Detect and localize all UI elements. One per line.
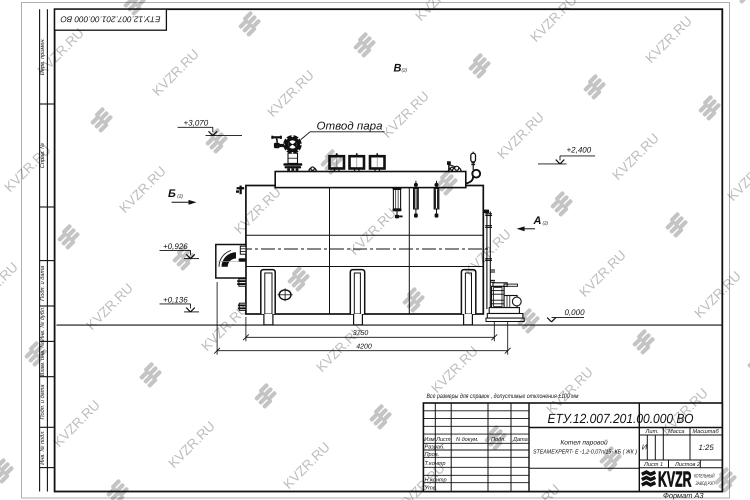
svg-text:KVZR: KVZR bbox=[658, 468, 692, 492]
svg-text:Дата: Дата bbox=[512, 437, 528, 443]
svg-text:В: В bbox=[394, 63, 402, 75]
svg-text:Лит.: Лит. bbox=[645, 429, 659, 435]
svg-text:+3,070: +3,070 bbox=[184, 119, 209, 128]
svg-text:N докум.: N докум. bbox=[456, 436, 479, 443]
svg-text:Подп. и дата: Подп. и дата bbox=[39, 384, 46, 419]
svg-text:ЕТУ.12.007.201.00.000 ВО: ЕТУ.12.007.201.00.000 ВО bbox=[60, 14, 161, 23]
svg-text:Подп. и дата: Подп. и дата bbox=[39, 266, 46, 301]
svg-text:Изм.Лист: Изм.Лист bbox=[424, 437, 451, 443]
svg-text:Б: Б bbox=[168, 188, 176, 200]
svg-text:И: И bbox=[642, 443, 648, 452]
svg-text:+2,400: +2,400 bbox=[567, 145, 592, 154]
svg-text:0,000: 0,000 bbox=[565, 308, 586, 317]
svg-text:Отвод пара: Отвод пара bbox=[317, 121, 383, 133]
svg-text:(2): (2) bbox=[402, 68, 408, 73]
svg-text:1:25: 1:25 bbox=[699, 443, 715, 452]
svg-text:(2): (2) bbox=[543, 220, 549, 225]
svg-text:Инв. № дубл.: Инв. № дубл. bbox=[39, 306, 46, 340]
svg-text:ЗАВОД РЭП: ЗАВОД РЭП bbox=[696, 481, 715, 487]
svg-text:Котел паровой: Котел паровой bbox=[560, 440, 608, 447]
svg-text:+0,136: +0,136 bbox=[163, 296, 188, 305]
svg-text:Формат А3: Формат А3 bbox=[663, 491, 704, 500]
svg-text:А: А bbox=[533, 215, 542, 227]
svg-text:(2): (2) bbox=[177, 193, 183, 198]
svg-text:КОТЕЛЬНЫЙ: КОТЕЛЬНЫЙ bbox=[694, 473, 715, 480]
svg-text:4200: 4200 bbox=[356, 343, 372, 350]
svg-text:STEAMEXPERT- Е -1,2-0,07п/15-: STEAMEXPERT- Е -1,2-0,07п/15- КБ ( ЖК ) bbox=[533, 449, 637, 456]
svg-text:Масштаб: Масштаб bbox=[693, 428, 720, 435]
svg-text:Инв. № подл.: Инв. № подл. bbox=[39, 430, 46, 465]
svg-text:Разраб.: Разраб. bbox=[425, 444, 445, 451]
svg-text:Пров.: Пров. bbox=[425, 452, 440, 458]
